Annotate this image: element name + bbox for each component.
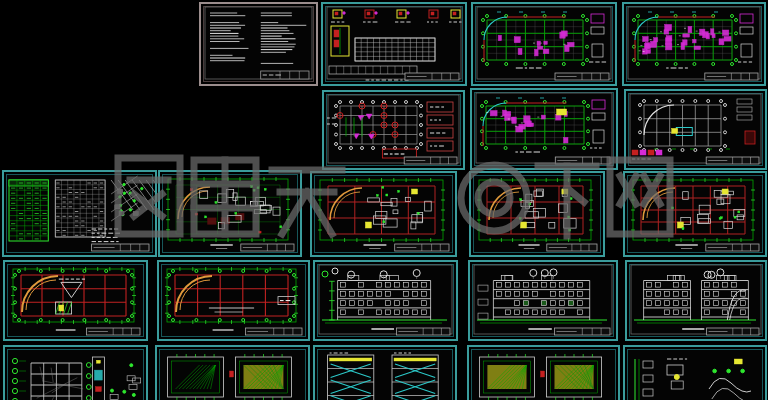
sheet-stair-section-sheet xyxy=(313,345,457,400)
sheet-drawing xyxy=(4,172,155,255)
sheet-building-elevation-1 xyxy=(313,260,458,341)
sheet-site-plan-and-schedules xyxy=(2,170,157,257)
sheet-drawing xyxy=(159,262,308,339)
sheet-building-elevation-2 xyxy=(468,260,618,341)
sheet-drawing xyxy=(5,347,146,400)
sheet-foundation-plan xyxy=(322,90,465,170)
sheet-drawing xyxy=(315,347,455,400)
sheet-structural-framing-plan-3 xyxy=(470,88,618,170)
sheet-building-section-sheet xyxy=(3,345,148,400)
sheet-misc-details-sheet xyxy=(623,345,767,400)
sheet-building-elevation-3 xyxy=(625,260,767,341)
sheet-roof-plan-2 xyxy=(157,260,310,341)
sheet-drawing xyxy=(312,173,455,255)
sheet-drawing xyxy=(626,91,765,168)
sheet-floor-plan-level-3 xyxy=(469,171,605,257)
sheet-drawing xyxy=(201,4,316,84)
sheet-drawing xyxy=(627,262,765,339)
sheet-drawing xyxy=(160,172,300,255)
sheet-detail-plan-sheet-1 xyxy=(155,345,310,400)
sheet-detail-plan-sheet-2 xyxy=(467,345,620,400)
sheet-structural-framing-plan-2 xyxy=(622,2,766,86)
cad-preview-canvas: 图霸天下网 xyxy=(0,0,768,400)
sheet-roof-plan-1 xyxy=(3,260,148,341)
sheet-drawing xyxy=(323,4,465,84)
sheet-floor-plan-level-2 xyxy=(310,171,457,257)
sheet-drawing xyxy=(315,262,456,339)
sheet-drawing xyxy=(157,347,308,400)
sheet-drawing xyxy=(625,347,765,400)
sheet-general-notes-sheet xyxy=(199,2,318,86)
sheet-drawing xyxy=(324,92,463,168)
watermark-text: 图霸天下网 xyxy=(110,146,111,147)
sheet-floor-plan-level-1 xyxy=(158,170,302,257)
sheet-drawing xyxy=(470,262,616,339)
sheet-roof-framing-plan xyxy=(624,89,767,170)
sheet-drawing xyxy=(625,173,765,255)
sheet-drawing xyxy=(473,4,615,84)
sheet-structural-framing-plan-1 xyxy=(471,2,617,86)
sheet-floor-plan-level-4 xyxy=(623,171,767,257)
sheet-drawing xyxy=(624,4,764,84)
sheet-drawing xyxy=(5,262,146,339)
sheet-component-details-and-schedule-sheet xyxy=(321,2,467,86)
sheet-drawing xyxy=(469,347,618,400)
sheet-drawing xyxy=(472,90,616,168)
sheet-drawing xyxy=(471,173,603,255)
